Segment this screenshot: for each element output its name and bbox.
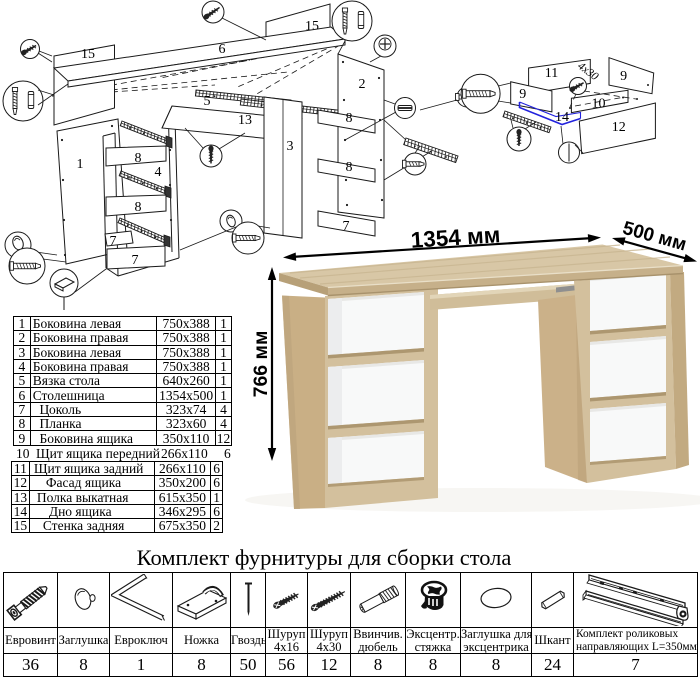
svg-text:8: 8 xyxy=(135,200,142,215)
svg-text:11: 11 xyxy=(545,66,558,81)
svg-text:9: 9 xyxy=(519,87,526,102)
svg-text:13: 13 xyxy=(238,113,252,128)
svg-text:5: 5 xyxy=(204,94,211,109)
svg-text:1354 мм: 1354 мм xyxy=(410,222,501,253)
svg-text:8: 8 xyxy=(346,111,353,126)
svg-text:7: 7 xyxy=(132,253,139,268)
svg-text:6: 6 xyxy=(219,42,226,57)
svg-text:2: 2 xyxy=(359,77,366,92)
svg-text:14: 14 xyxy=(555,110,569,125)
svg-text:1: 1 xyxy=(77,157,84,172)
svg-text:8: 8 xyxy=(346,160,353,175)
svg-text:7: 7 xyxy=(110,234,117,249)
svg-text:12: 12 xyxy=(612,120,626,135)
svg-text:10: 10 xyxy=(592,97,606,112)
svg-text:766 мм: 766 мм xyxy=(250,331,272,398)
svg-text:15: 15 xyxy=(81,47,95,62)
svg-text:9: 9 xyxy=(620,69,627,84)
svg-text:7: 7 xyxy=(343,219,350,234)
svg-text:8: 8 xyxy=(135,151,142,166)
svg-text:4: 4 xyxy=(155,165,162,180)
svg-text:3: 3 xyxy=(287,139,294,154)
